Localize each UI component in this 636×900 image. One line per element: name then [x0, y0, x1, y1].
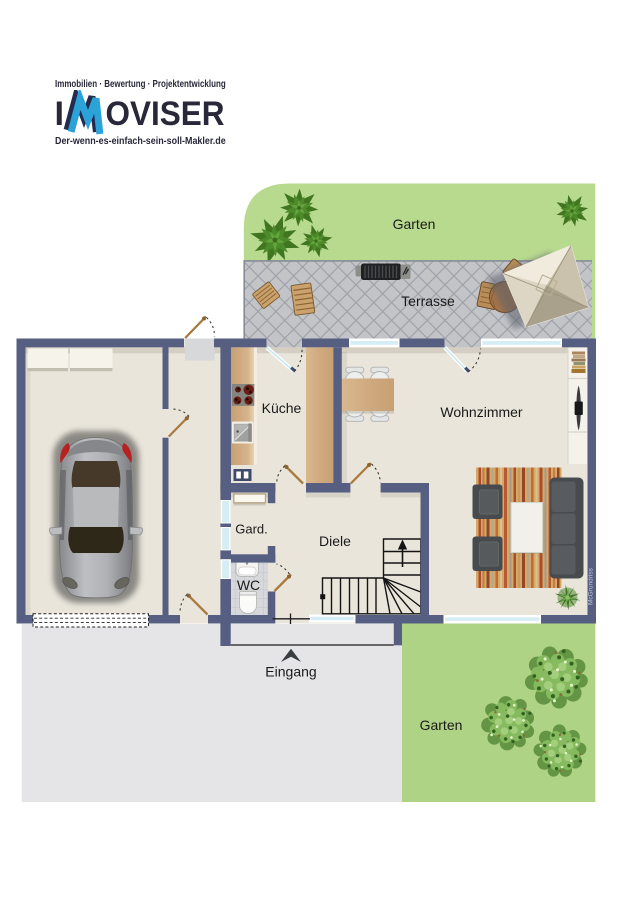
svg-text:Eingang: Eingang [265, 664, 316, 680]
svg-text:McGrundriss: McGrundriss [588, 567, 595, 605]
svg-text:Gard.: Gard. [235, 522, 268, 537]
svg-text:Diele: Diele [319, 533, 351, 549]
svg-text:Küche: Küche [262, 400, 302, 416]
svg-text:Wohnzimmer: Wohnzimmer [440, 404, 523, 420]
svg-text:Terrasse: Terrasse [401, 293, 455, 309]
svg-text:WC: WC [237, 577, 260, 593]
svg-text:Garten: Garten [420, 717, 463, 733]
svg-text:Garten: Garten [393, 216, 436, 232]
